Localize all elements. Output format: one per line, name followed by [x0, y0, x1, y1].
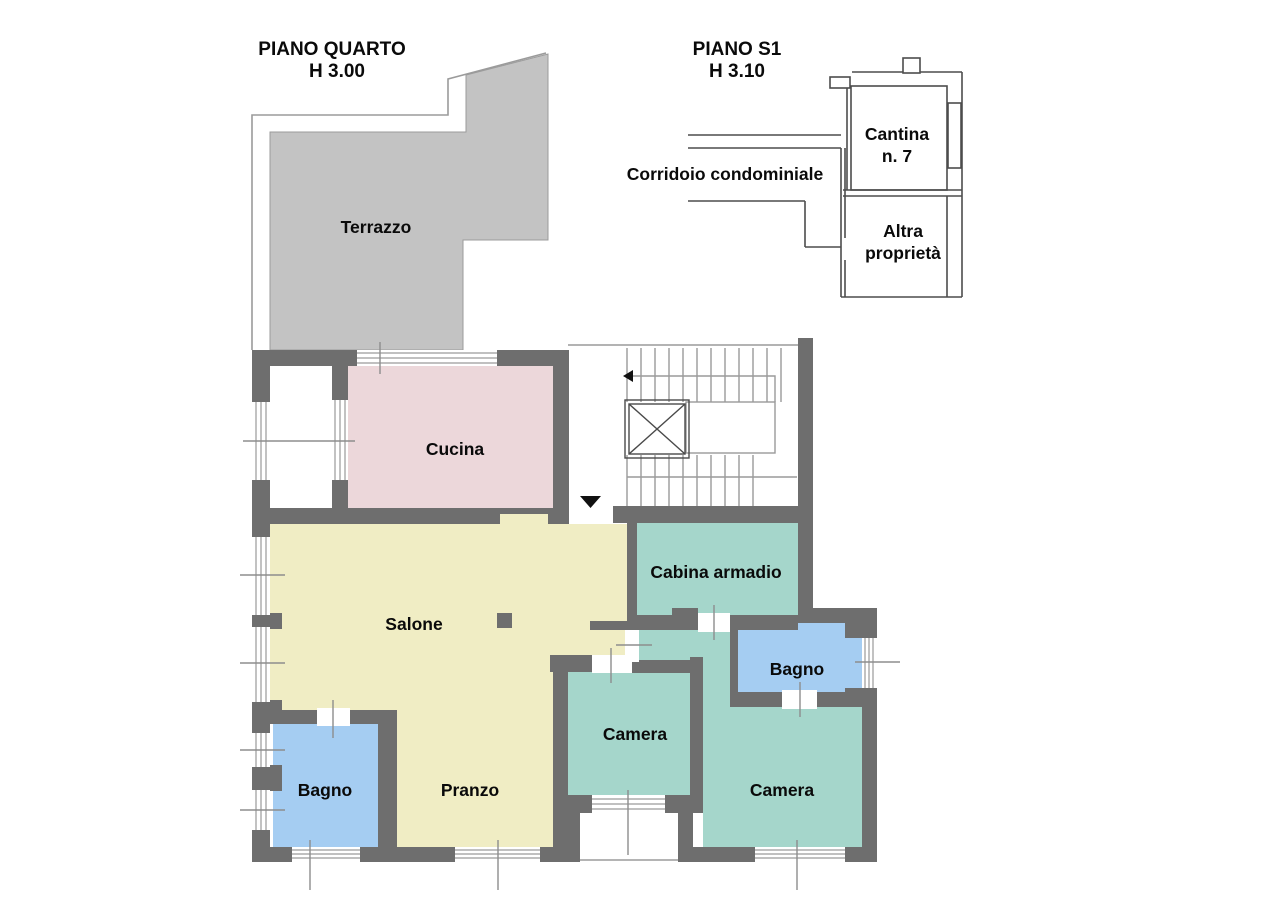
floorplan-page: PIANO QUARTO H 3.00 PIANO S1 H 3.10 Terr… [0, 0, 1280, 905]
label-camera-small: Camera [603, 724, 667, 744]
elevator [625, 400, 689, 458]
kitchen-floor [348, 366, 553, 508]
stair-direction-arrow-icon [623, 370, 633, 382]
entrance-arrow-icon [580, 496, 601, 508]
stairwell [568, 345, 798, 508]
loggia [580, 813, 678, 862]
bath-right-window [862, 638, 877, 688]
s1-door-box [830, 77, 850, 88]
label-terrazzo: Terrazzo [341, 217, 412, 237]
corridor-strip-floor [703, 630, 730, 712]
label-pranzo: Pranzo [441, 780, 499, 800]
column [497, 613, 512, 628]
kitchen-window [332, 400, 348, 480]
floorplan-drawing: PIANO QUARTO H 3.00 PIANO S1 H 3.10 Terr… [0, 0, 1280, 905]
stair-landing [686, 402, 775, 453]
label-corridoio: Corridoio condominiale [627, 164, 824, 184]
living-floor-b [270, 524, 397, 710]
s1-top-notch [903, 58, 920, 73]
label-bagno-left: Bagno [298, 780, 352, 800]
label-altra-line1: Altra [883, 221, 923, 241]
stairs-upper-flight [627, 348, 781, 402]
stairs-lower-flight [627, 455, 753, 506]
plan-quarto-height: H 3.00 [309, 61, 365, 82]
plan-s1-title: PIANO S1 [693, 39, 782, 60]
plan-s1-height: H 3.10 [709, 61, 765, 82]
label-cucina: Cucina [426, 439, 485, 459]
label-altra-line2: proprietà [865, 243, 941, 263]
kitchen-doorway-floor [500, 514, 548, 524]
label-salone: Salone [385, 614, 443, 634]
s1-cantina-window [948, 103, 961, 168]
label-cabina-armadio: Cabina armadio [650, 562, 781, 582]
bedroom-large-floor [703, 707, 862, 848]
label-cantina-line1: Cantina [865, 124, 929, 144]
label-bagno-right: Bagno [770, 659, 824, 679]
terrace-floor [270, 54, 548, 350]
plan-quarto-title: PIANO QUARTO [258, 39, 405, 60]
bedroom-small-door [592, 655, 632, 673]
terrace [252, 53, 548, 350]
label-camera-large: Camera [750, 780, 814, 800]
bath-right-floor [738, 623, 862, 692]
label-cantina-line2: n. 7 [882, 146, 912, 166]
